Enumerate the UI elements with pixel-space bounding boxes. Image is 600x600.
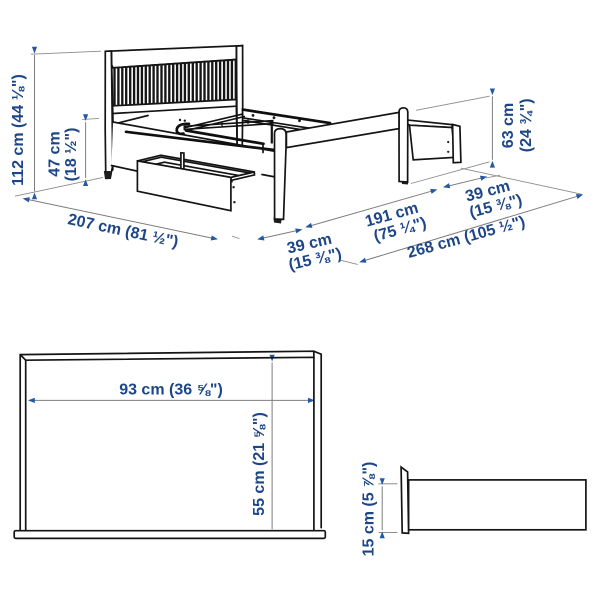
svg-text:47 cm: 47 cm [47,131,64,176]
svg-text:93 cm (36 ⅝"): 93 cm (36 ⅝") [119,381,223,398]
svg-text:(18 ½"): (18 ½") [63,128,80,182]
svg-text:55 cm (21 ⅝"): 55 cm (21 ⅝") [251,412,268,516]
svg-text:112 cm (44 ⅛"): 112 cm (44 ⅛") [10,74,27,186]
svg-text:15 cm (5 ⅞"): 15 cm (5 ⅞") [360,462,377,557]
svg-text:63 cm: 63 cm [500,103,517,148]
svg-text:(24 ¾"): (24 ¾") [518,98,535,152]
